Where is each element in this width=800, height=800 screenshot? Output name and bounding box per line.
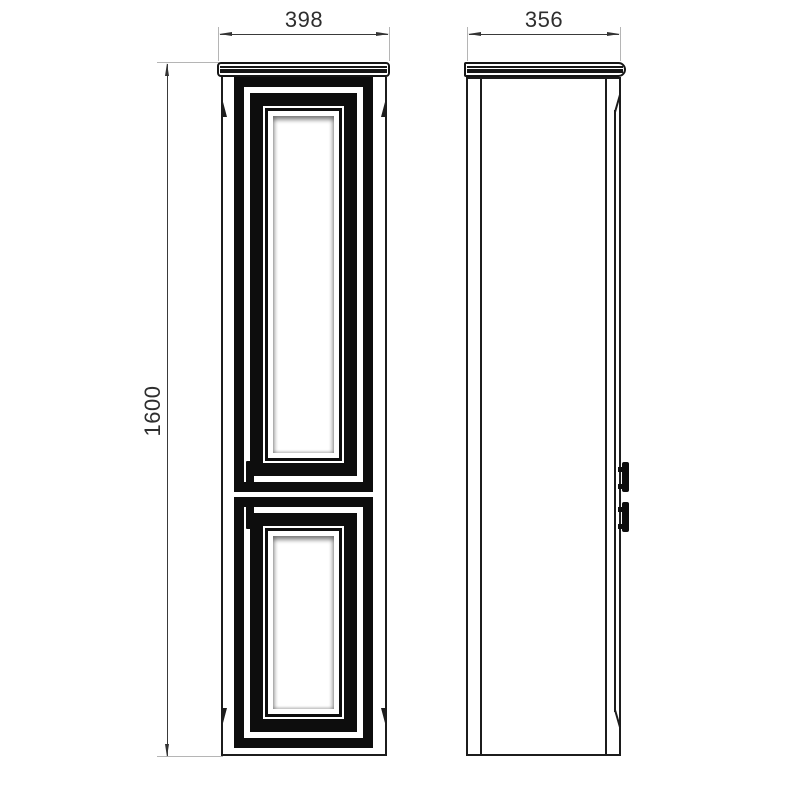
arrowhead-left-icon <box>468 32 481 36</box>
technical-drawing-cabinet: 398 356 1600 <box>0 0 800 800</box>
arrowhead-right-icon <box>607 32 620 36</box>
side-door-edge-line <box>614 110 616 712</box>
arrowhead-down-icon <box>165 744 169 757</box>
dimension-width-label: 398 <box>234 9 374 31</box>
upper-door-panel <box>273 116 334 453</box>
arrowhead-right-icon <box>376 32 389 36</box>
dimension-line <box>220 34 388 35</box>
side-back-panel-line <box>480 78 482 755</box>
side-carcass <box>466 77 621 756</box>
upper-door-handle-side <box>622 462 629 492</box>
side-front-frame-line <box>605 78 607 755</box>
upper-door-bevel <box>265 108 342 461</box>
lower-door <box>234 497 373 748</box>
upper-door-handle <box>246 461 254 488</box>
lower-door-raised-frame <box>250 513 357 732</box>
cornice-moulding-line <box>467 69 623 73</box>
arrowhead-up-icon <box>165 63 169 76</box>
dimension-line <box>167 64 168 756</box>
extension-line <box>389 27 390 61</box>
cornice-moulding-line <box>220 66 387 68</box>
extension-line <box>620 27 621 61</box>
lower-door-handle <box>246 502 254 529</box>
front-cornice <box>217 62 390 77</box>
dimension-depth-label: 356 <box>474 9 614 31</box>
cornice-moulding-line <box>220 69 387 73</box>
upper-door <box>234 77 373 492</box>
dimension-line <box>469 34 619 35</box>
arrowhead-left-icon <box>219 32 232 36</box>
upper-door-raised-frame <box>250 93 357 476</box>
dimension-height-label: 1600 <box>142 376 164 446</box>
lower-door-handle-side <box>622 502 629 532</box>
lower-door-panel <box>273 536 334 709</box>
cornice-moulding-line <box>467 66 623 68</box>
side-cornice <box>464 62 626 77</box>
lower-door-bevel <box>265 528 342 717</box>
